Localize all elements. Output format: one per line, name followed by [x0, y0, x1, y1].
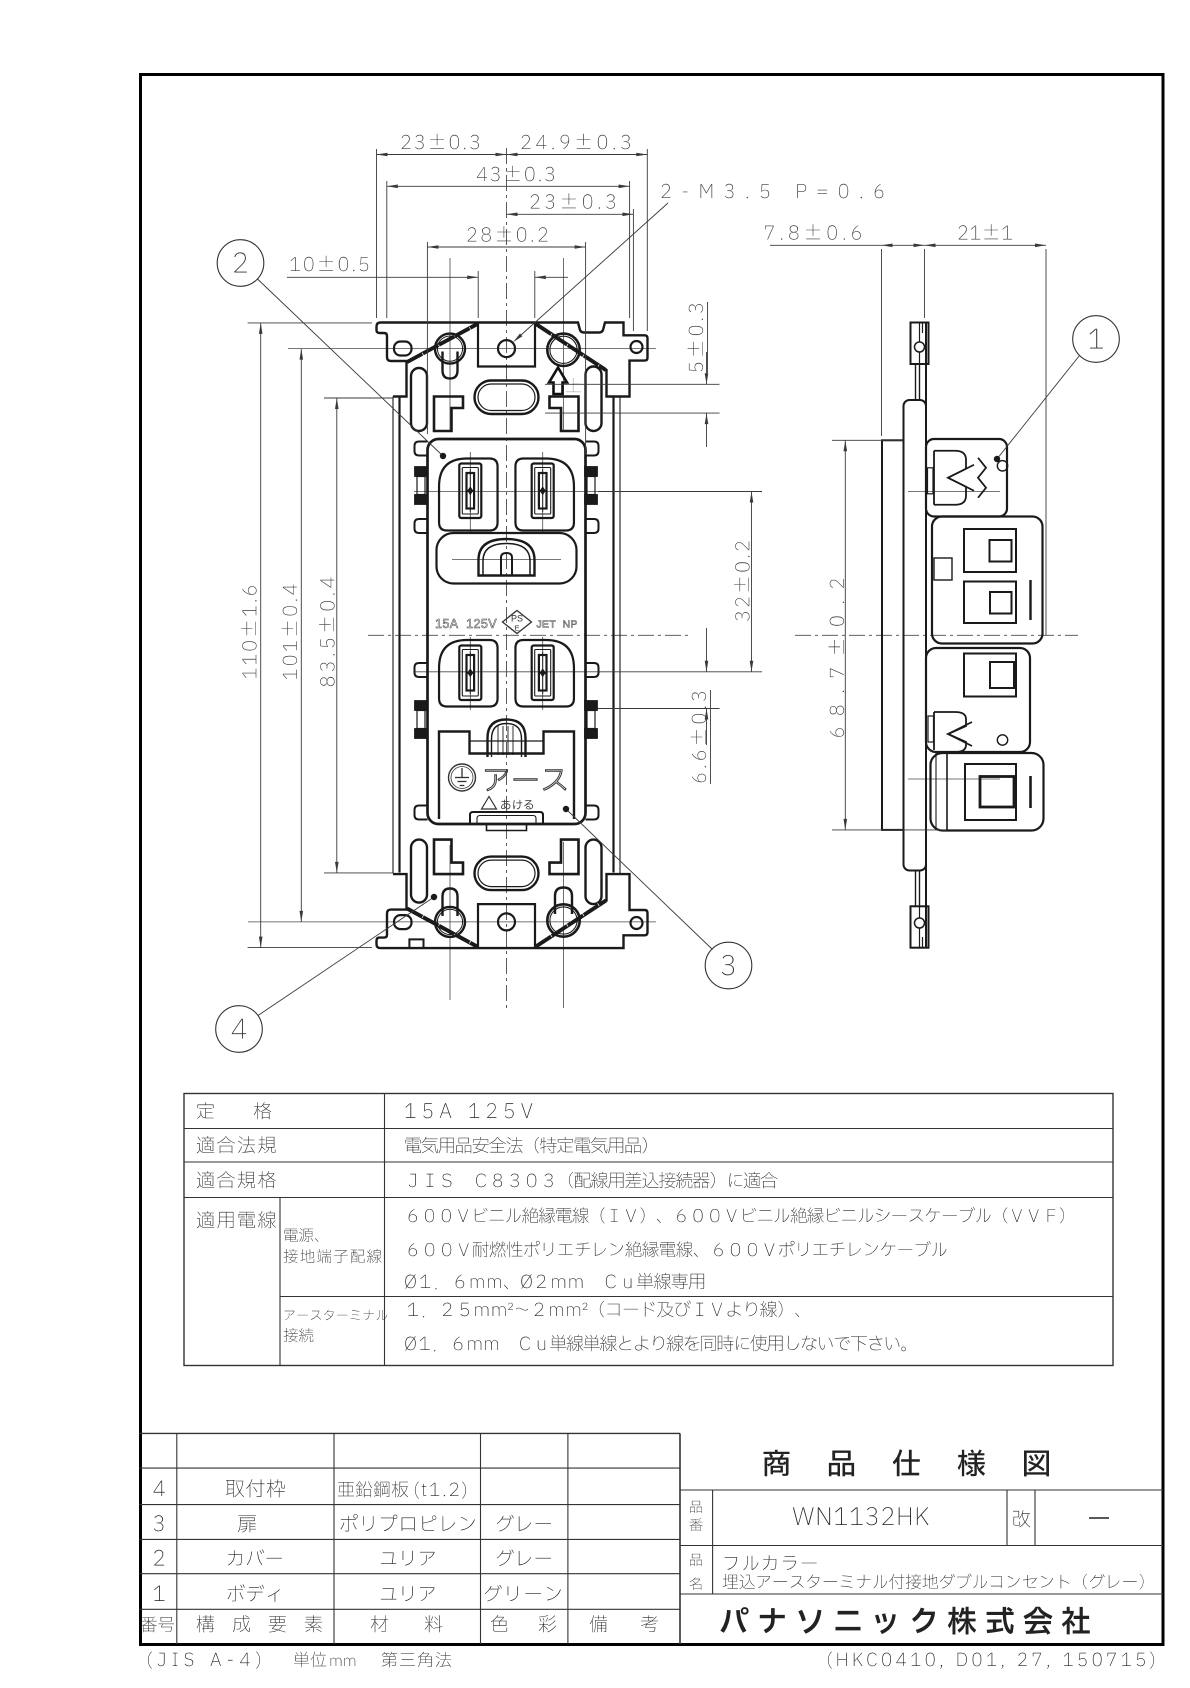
svg-text:NP: NP [563, 619, 578, 631]
svg-text:E: E [514, 624, 519, 633]
svg-text:15A 125V: 15A 125V [435, 617, 497, 631]
svg-text:JET: JET [537, 619, 557, 631]
svg-text:PS: PS [511, 614, 523, 624]
